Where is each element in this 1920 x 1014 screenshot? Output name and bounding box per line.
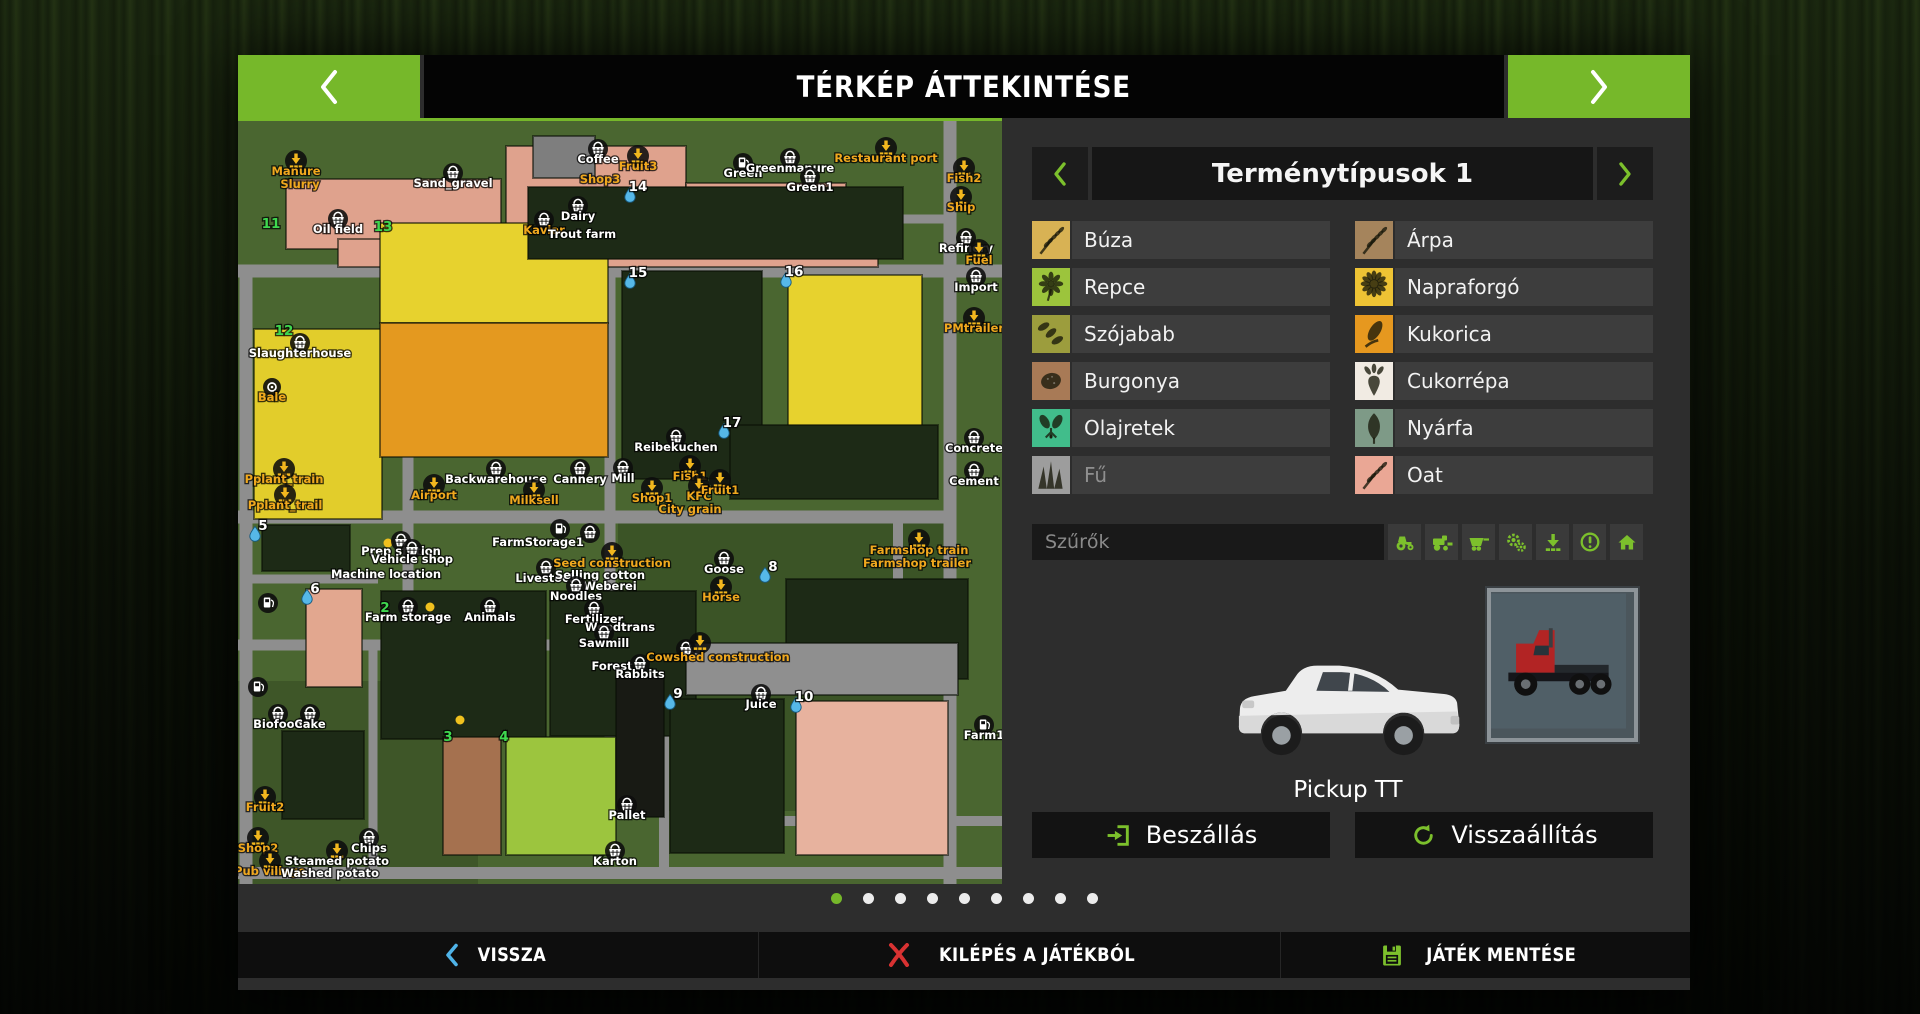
- map-label: Airport: [411, 488, 457, 502]
- crop-icon-blob: [1032, 362, 1070, 400]
- map-label: Farmshop trailer: [863, 556, 971, 570]
- page-dot-7[interactable]: [1023, 893, 1034, 904]
- map-label: Chips: [351, 841, 387, 855]
- map-label: Machine location: [331, 567, 441, 581]
- map-label: Juice: [744, 697, 776, 711]
- map-label: PMtrailer: [944, 321, 1002, 335]
- quit-game-button[interactable]: KILÉPÉS A JÁTÉKBÓL: [758, 932, 1281, 978]
- map-label: 3: [443, 729, 452, 745]
- download-icon: [1542, 531, 1564, 553]
- filter-bar: Szűrők: [1032, 524, 1653, 560]
- chevron-right-icon: [1617, 161, 1633, 187]
- crop-label: Burgonya: [1072, 362, 1330, 400]
- map-field: [306, 589, 362, 687]
- map-label: Milksell: [509, 493, 559, 507]
- crop-row-fű[interactable]: Fű: [1032, 456, 1330, 494]
- map-label: 11: [262, 216, 281, 232]
- filter-placeholder: Szűrők: [1045, 531, 1110, 553]
- crop-icon-grass: [1032, 456, 1070, 494]
- filter-button-harvester[interactable]: [1425, 524, 1458, 560]
- chevron-right-icon: [1586, 67, 1612, 107]
- crop-row-kukorica[interactable]: Kukorica: [1355, 315, 1653, 353]
- red-truck-image: [1491, 592, 1626, 730]
- back-button[interactable]: VISSZA: [238, 932, 758, 978]
- map-label: 13: [374, 219, 393, 235]
- map-field: [670, 699, 784, 853]
- crop-label: Repce: [1072, 268, 1330, 306]
- legend-prev-button[interactable]: [1032, 147, 1088, 200]
- crop-icon-leaf: [1355, 409, 1393, 447]
- crop-label: Árpa: [1395, 221, 1653, 259]
- vehicle-thumbnail[interactable]: [1487, 588, 1638, 742]
- crop-row-burgonya[interactable]: Burgonya: [1032, 362, 1330, 400]
- filter-button-tractor[interactable]: [1388, 524, 1421, 560]
- crop-row-árpa[interactable]: Árpa: [1355, 221, 1653, 259]
- map-label: Slaughterhouse: [249, 346, 352, 360]
- map-label: Karton: [593, 854, 637, 868]
- crop-row-olajretek[interactable]: Olajretek: [1032, 409, 1330, 447]
- harvester-icon: [1431, 531, 1453, 553]
- map-label: Reibekuchen: [634, 440, 717, 454]
- page-dot-3[interactable]: [895, 893, 906, 904]
- map-label: Manure: [271, 164, 320, 178]
- warning-icon: [1579, 531, 1601, 553]
- page-dot-2[interactable]: [863, 893, 874, 904]
- crop-label: Oat: [1395, 456, 1653, 494]
- page-dot-5[interactable]: [959, 893, 970, 904]
- page-dot-8[interactable]: [1055, 893, 1066, 904]
- vehicle-name: Pickup TT: [1228, 777, 1468, 803]
- crop-label: Olajretek: [1072, 409, 1330, 447]
- vehicle-buttons: Beszállás Visszaállítás: [1032, 812, 1653, 858]
- map-label: 8: [768, 559, 777, 575]
- map-label: 4: [499, 729, 508, 745]
- crop-legend-grid: BúzaRepceSzójababBurgonyaOlajretekFűÁrpa…: [1032, 221, 1653, 494]
- map-label: 5: [258, 518, 267, 534]
- crop-icon-spike: [1032, 221, 1070, 259]
- crop-label: Szójabab: [1072, 315, 1330, 353]
- map-label: FarmStorage1: [492, 535, 584, 549]
- crop-icon-sunflower: [1355, 268, 1393, 306]
- map-label: Horse: [702, 590, 740, 604]
- filter-button-trailer[interactable]: [1462, 524, 1495, 560]
- reset-vehicle-button[interactable]: Visszaállítás: [1355, 812, 1653, 858]
- crop-row-cukorrépa[interactable]: Cukorrépa: [1355, 362, 1653, 400]
- crop-icon-pods: [1032, 315, 1070, 353]
- map-label: City grain: [658, 502, 721, 516]
- map-label: Fish2: [947, 171, 982, 185]
- map-label: Slurry: [280, 177, 320, 191]
- filter-button-home[interactable]: [1610, 524, 1643, 560]
- trailer-icon: [1468, 531, 1490, 553]
- page-dot-9[interactable]: [1087, 893, 1098, 904]
- filter-button-download[interactable]: [1536, 524, 1569, 560]
- legend-header: Terménytípusok 1: [1032, 147, 1653, 200]
- crop-label: Cukorrépa: [1395, 362, 1653, 400]
- save-game-button[interactable]: JÁTÉK MENTÉSE: [1280, 932, 1690, 978]
- crop-icon-beet: [1355, 362, 1393, 400]
- map-label: Restaurant port: [834, 151, 938, 165]
- gears-icon: [1505, 531, 1527, 553]
- game-map[interactable]: ManureSlurrySand_gravelCoffeeFruit3Shop3…: [238, 118, 1002, 884]
- map-overview-dialog: TÉRKÉP ÁTTEKINTÉSE ManureSlurrySand_grav…: [238, 55, 1690, 990]
- map-label: Pplant_trail: [248, 498, 323, 513]
- map-marker-fuel[interactable]: [248, 677, 268, 697]
- map-label: Fuel: [965, 253, 992, 267]
- map-label: 6: [310, 581, 319, 597]
- map-label: Sawmill: [579, 636, 629, 650]
- crop-row-nyárfa[interactable]: Nyárfa: [1355, 409, 1653, 447]
- crop-icon-spike: [1355, 456, 1393, 494]
- map-label: Oil field: [313, 222, 363, 236]
- map-label: 14: [629, 179, 648, 195]
- map-label: Greenmanure: [746, 161, 835, 175]
- map-label: Concrete: [945, 441, 1002, 455]
- page-dot-4[interactable]: [927, 893, 938, 904]
- crop-icon-flower: [1032, 268, 1070, 306]
- map-label: Mill: [611, 471, 634, 485]
- map-label: Bale: [258, 390, 286, 404]
- map-field: [506, 737, 616, 855]
- map-label: Fruit1: [701, 483, 739, 497]
- map-field: [443, 737, 501, 855]
- map-label: Farm storage: [365, 610, 452, 624]
- map-label: Vehicle shop: [371, 552, 453, 566]
- chevron-left-icon: [1052, 161, 1068, 187]
- filter-button-gears[interactable]: [1499, 524, 1532, 560]
- map-label: Farmshop train: [870, 543, 969, 557]
- crop-label: Fű: [1072, 456, 1330, 494]
- page-dots: [238, 893, 1690, 904]
- filter-button-warning[interactable]: [1573, 524, 1606, 560]
- map-label: 15: [629, 265, 648, 281]
- map-label: Import: [954, 280, 998, 294]
- crop-row-napraforgó[interactable]: Napraforgó: [1355, 268, 1653, 306]
- map-label: Ship: [947, 200, 976, 214]
- crop-row-oat[interactable]: Oat: [1355, 456, 1653, 494]
- map-field: [528, 187, 903, 259]
- map-label: Cement: [949, 474, 999, 488]
- crop-label: Nyárfa: [1395, 409, 1653, 447]
- map-field: [262, 525, 350, 571]
- crop-label: Napraforgó: [1395, 268, 1653, 306]
- crop-row-szójabab[interactable]: Szójabab: [1032, 315, 1330, 353]
- map-label: 17: [723, 415, 742, 431]
- map-label: Shop3: [580, 172, 621, 186]
- map-label: 16: [785, 264, 804, 280]
- map-label: Pallet: [608, 808, 646, 822]
- map-label: Fruit3: [619, 159, 657, 173]
- crop-label: Kukorica: [1395, 315, 1653, 353]
- map-label: Cake: [294, 717, 326, 731]
- map-label: Farm1: [964, 728, 1002, 742]
- crop-icon-radish: [1032, 409, 1070, 447]
- chevron-left-icon: [316, 67, 342, 107]
- vehicle-preview: [1228, 635, 1468, 785]
- map-canvas: ManureSlurrySand_gravelCoffeeFruit3Shop3…: [238, 121, 1002, 884]
- map-marker-dotY[interactable]: [456, 716, 465, 725]
- map-label: Dairy: [561, 209, 596, 223]
- map-label: Trout farm: [548, 227, 616, 241]
- page-next-button[interactable]: [1508, 55, 1690, 118]
- map-label: Washed potato: [281, 866, 379, 880]
- enter-icon: [1105, 822, 1132, 849]
- map-label: Cowshed construction: [646, 650, 789, 664]
- legend-title: Terménytípusok 1: [1092, 147, 1593, 200]
- crop-row-búza[interactable]: Búza: [1032, 221, 1330, 259]
- crop-row-repce[interactable]: Repce: [1032, 268, 1330, 306]
- map-label: Coffee: [577, 152, 618, 166]
- page-prev-button[interactable]: [238, 55, 420, 118]
- map-label: Sand_gravel: [413, 176, 492, 191]
- filter-input[interactable]: Szűrők: [1032, 524, 1384, 560]
- map-label: Green1: [787, 180, 834, 194]
- footer-bar: VISSZA KILÉPÉS A JÁTÉKBÓL JÁTÉK MENTÉSE: [238, 932, 1690, 978]
- map-label: Animals: [464, 610, 516, 624]
- tractor-icon: [1394, 531, 1416, 553]
- map-label: Cannery: [553, 472, 607, 486]
- enter-vehicle-button[interactable]: Beszállás: [1032, 812, 1330, 858]
- map-label: Rabbits: [615, 667, 665, 681]
- crop-icon-corn: [1355, 315, 1393, 353]
- save-floppy-icon: [1382, 944, 1402, 967]
- reset-icon: [1410, 822, 1437, 849]
- map-label: Goose: [704, 562, 744, 576]
- map-marker-fuel[interactable]: [258, 593, 278, 613]
- map-label: 10: [795, 689, 814, 705]
- pickup-truck-image: [1228, 635, 1468, 777]
- dialog-header: TÉRKÉP ÁTTEKINTÉSE: [238, 55, 1690, 118]
- quit-x-icon: [887, 943, 911, 967]
- map-label: 9: [673, 686, 682, 702]
- page-dot-6[interactable]: [991, 893, 1002, 904]
- map-field: [282, 731, 364, 819]
- back-chevron-icon: [444, 943, 460, 967]
- map-field: [730, 425, 938, 499]
- map-field: [380, 323, 608, 457]
- page-title: TÉRKÉP ÁTTEKINTÉSE: [424, 55, 1504, 118]
- map-label: 12: [275, 323, 294, 339]
- map-field: [796, 701, 948, 855]
- crop-icon-spike: [1355, 221, 1393, 259]
- legend-next-button[interactable]: [1597, 147, 1653, 200]
- map-label: Fruit2: [246, 800, 284, 814]
- crop-label: Búza: [1072, 221, 1330, 259]
- page-dot-1[interactable]: [831, 893, 842, 904]
- home-icon: [1616, 531, 1638, 553]
